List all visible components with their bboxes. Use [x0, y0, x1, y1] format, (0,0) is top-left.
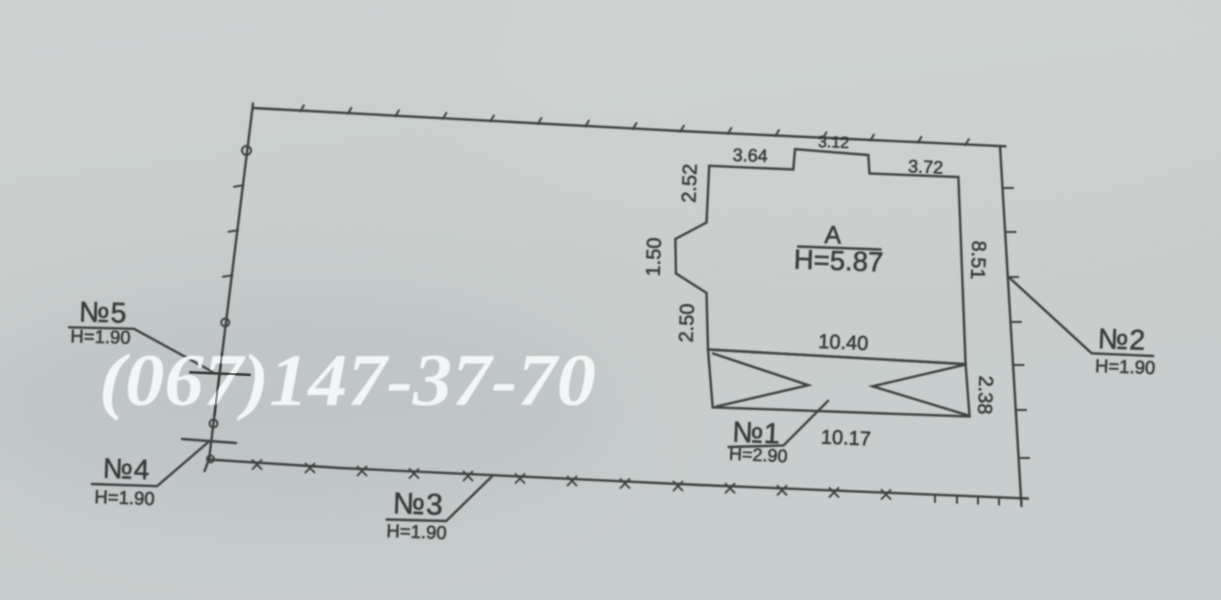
svg-text:H=2.90: H=2.90	[729, 444, 788, 467]
svg-text:2.38: 2.38	[973, 375, 996, 415]
svg-text:2.50: 2.50	[676, 303, 699, 343]
svg-text:10.40: 10.40	[818, 331, 869, 355]
svg-text:3.64: 3.64	[732, 145, 768, 166]
svg-text:3.72: 3.72	[908, 156, 944, 178]
svg-text:10.17: 10.17	[820, 426, 871, 450]
svg-text:H=1.90: H=1.90	[386, 520, 447, 543]
svg-text:№5: №5	[79, 296, 128, 329]
svg-text:2.52: 2.52	[678, 163, 701, 203]
svg-text:№4: №4	[102, 453, 151, 486]
svg-text:3.12: 3.12	[818, 134, 850, 152]
svg-text:1.50: 1.50	[643, 237, 666, 277]
svg-text:№3: №3	[392, 487, 444, 522]
svg-text:(067)147-37-70: (067)147-37-70	[99, 340, 596, 422]
svg-text:H=5.87: H=5.87	[793, 243, 883, 277]
svg-text:№2: №2	[1097, 323, 1147, 357]
svg-text:8.51: 8.51	[966, 240, 989, 280]
svg-text:H=1.90: H=1.90	[1095, 355, 1156, 378]
svg-text:H=1.90: H=1.90	[94, 486, 155, 509]
